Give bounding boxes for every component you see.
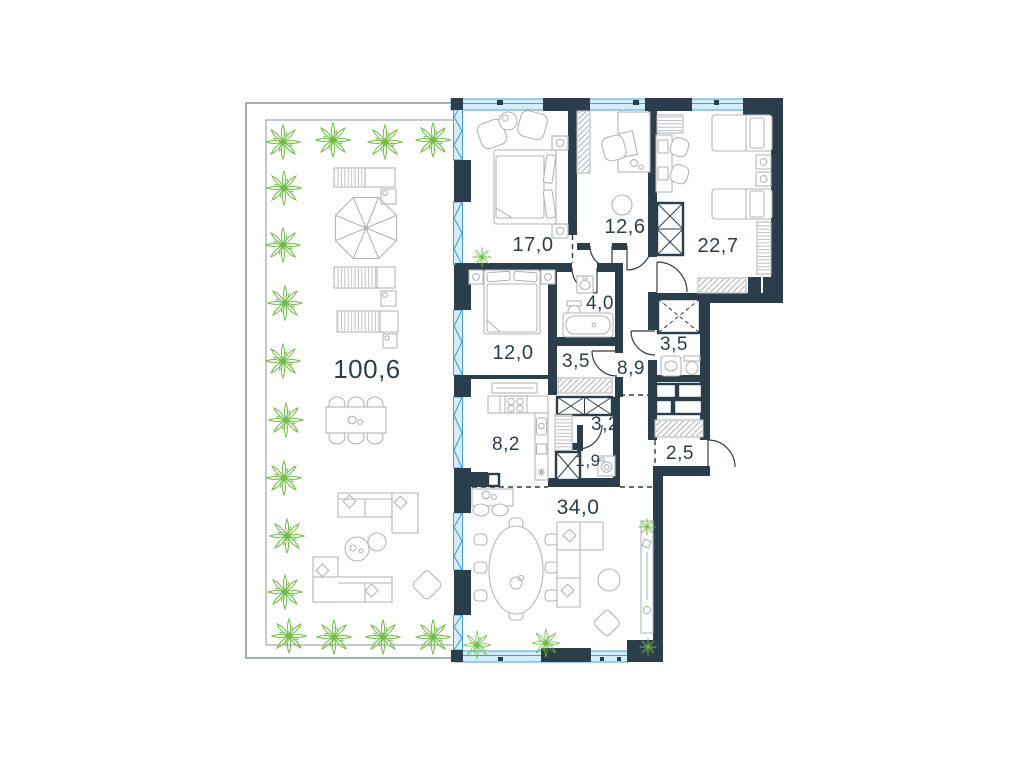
double-bed [494, 150, 556, 224]
room-shower: 3,5 [658, 299, 700, 376]
plant-icon [267, 461, 301, 495]
room-area-label-bedroom-1: 17,0 [513, 234, 554, 256]
room-laundry: 1,9 [556, 451, 615, 480]
plant-icon [416, 620, 450, 654]
door-arc [657, 262, 687, 292]
double-bed [484, 270, 540, 334]
plant-icon [317, 620, 351, 654]
plant-icon [366, 620, 400, 654]
shower [658, 299, 700, 333]
room-closet: 3,2 [555, 397, 619, 452]
plant-icon [266, 125, 300, 159]
media-bench [641, 521, 653, 633]
plant-icon [266, 344, 300, 378]
umbrella-icon [336, 198, 397, 259]
dining-table [474, 518, 558, 620]
sofa [557, 522, 603, 607]
round-table [612, 195, 632, 215]
door-arc [592, 351, 617, 376]
nightstand [552, 224, 568, 238]
storage-unit [656, 400, 672, 414]
room-bathroom: 4,0 [563, 276, 614, 337]
single-bed [712, 115, 772, 151]
room-bedroom-3: 12,0 [469, 270, 555, 393]
room-area-label-bedroom-3: 12,0 [493, 342, 534, 364]
floor-plan: 100,6 [0, 0, 1024, 768]
sink [577, 276, 593, 293]
sink [661, 356, 681, 376]
room-area-label-office: 12,6 [605, 216, 646, 238]
room-office: 12,6 [577, 111, 650, 238]
plant-icon [267, 171, 301, 205]
coffee-table [598, 569, 620, 591]
small-desk [472, 489, 513, 516]
terrace-sofa-1 [338, 493, 418, 533]
terrace-dining-table [326, 397, 386, 444]
dishwasher-icon [538, 468, 546, 476]
storage-unit [678, 384, 702, 398]
single-bed [712, 189, 772, 219]
storage-niche [655, 384, 703, 437]
room-area-label-hallway: 8,9 [617, 358, 645, 379]
nightstand [541, 270, 555, 284]
storage-unit [674, 400, 702, 414]
room-bedroom-2: 22,7 [656, 115, 776, 293]
pouf [593, 609, 621, 637]
plant-icon [272, 619, 306, 653]
plant-icon [270, 519, 304, 553]
cabinet [763, 277, 776, 293]
plant-icon [368, 125, 402, 159]
room-living: 34,0 [463, 489, 656, 659]
terrace-sofa-2 [313, 557, 392, 602]
wardrobe-x [557, 397, 612, 415]
storage-unit [656, 384, 676, 398]
wardrobe-x [657, 203, 683, 255]
plant-icon [316, 123, 350, 157]
cabinet [748, 277, 761, 293]
plant-icon [416, 123, 450, 157]
plant-icon [268, 575, 302, 609]
console-table [492, 383, 537, 393]
window-band-top [451, 99, 750, 110]
bathtub [563, 313, 613, 337]
terrace-pouf [411, 569, 442, 600]
nightstand [469, 270, 483, 284]
room-area-label-laundry: 1,9 [575, 451, 600, 470]
room-area-label-shower: 3,5 [660, 334, 688, 355]
room-area-label-kitchen: 8,2 [492, 434, 520, 455]
nightstand [552, 136, 568, 150]
room-area-label-entry: 2,5 [666, 443, 694, 464]
room-area-label-bedroom-2: 22,7 [698, 235, 739, 257]
plant-icon [268, 286, 302, 320]
room-area-label-wardrobe-hall: 3,5 [562, 351, 590, 372]
plant-icon [269, 403, 303, 437]
terrace-coffee-tables [345, 533, 386, 561]
nightstand [756, 172, 771, 186]
room-kitchen: 8,2 [488, 396, 548, 480]
room-area-label-bathroom: 4,0 [586, 293, 614, 314]
door-arc [631, 331, 655, 355]
floor-plan-page: 100,6 [0, 0, 1024, 768]
terrace: 100,6 [246, 103, 453, 658]
room-area-label-living: 34,0 [557, 496, 600, 519]
plant-icon [266, 228, 300, 262]
side-table [499, 112, 517, 130]
toilet [684, 356, 700, 375]
room-area-label-closet: 3,2 [591, 414, 619, 435]
door-arc [627, 246, 651, 270]
room-area-label-terrace: 100,6 [333, 354, 401, 384]
room-bedroom-1: 17,0 [473, 109, 568, 266]
door-arc-entrance [708, 440, 735, 467]
nightstand [756, 155, 771, 169]
armchair [516, 109, 549, 141]
